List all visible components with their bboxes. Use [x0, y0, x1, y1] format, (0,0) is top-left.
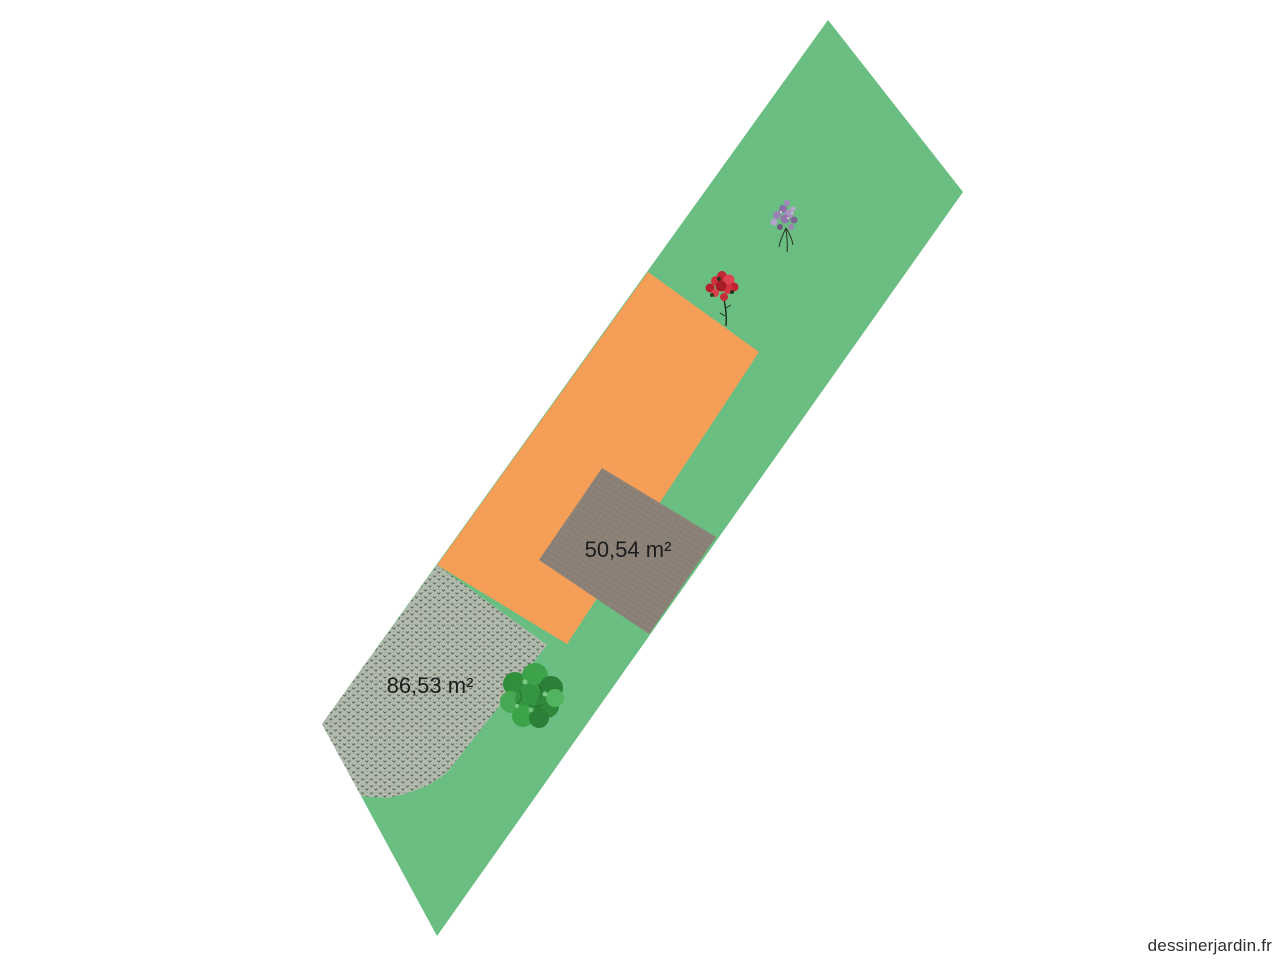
gravel-area-label: 86,53 m²: [387, 673, 474, 698]
watermark-text: dessinerjardin.fr: [1148, 937, 1272, 954]
terrace-area-label: 50,54 m²: [585, 537, 672, 562]
garden-plan-canvas: 50,54 m² 86,53 m²: [0, 0, 1280, 960]
garden-plan-stage: 50,54 m² 86,53 m²: [0, 0, 1280, 960]
